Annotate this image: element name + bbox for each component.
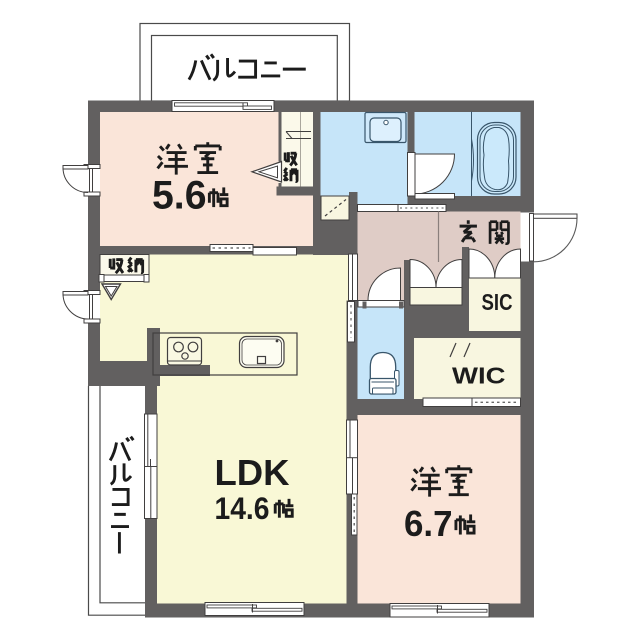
svg-text:SIC: SIC: [482, 289, 513, 315]
svg-text:6.7: 6.7: [404, 503, 453, 544]
svg-text:WIC: WIC: [452, 363, 506, 389]
svg-text:5.6: 5.6: [152, 174, 207, 218]
svg-text:14.6: 14.6: [215, 490, 270, 526]
svg-text:LDK: LDK: [215, 452, 291, 493]
